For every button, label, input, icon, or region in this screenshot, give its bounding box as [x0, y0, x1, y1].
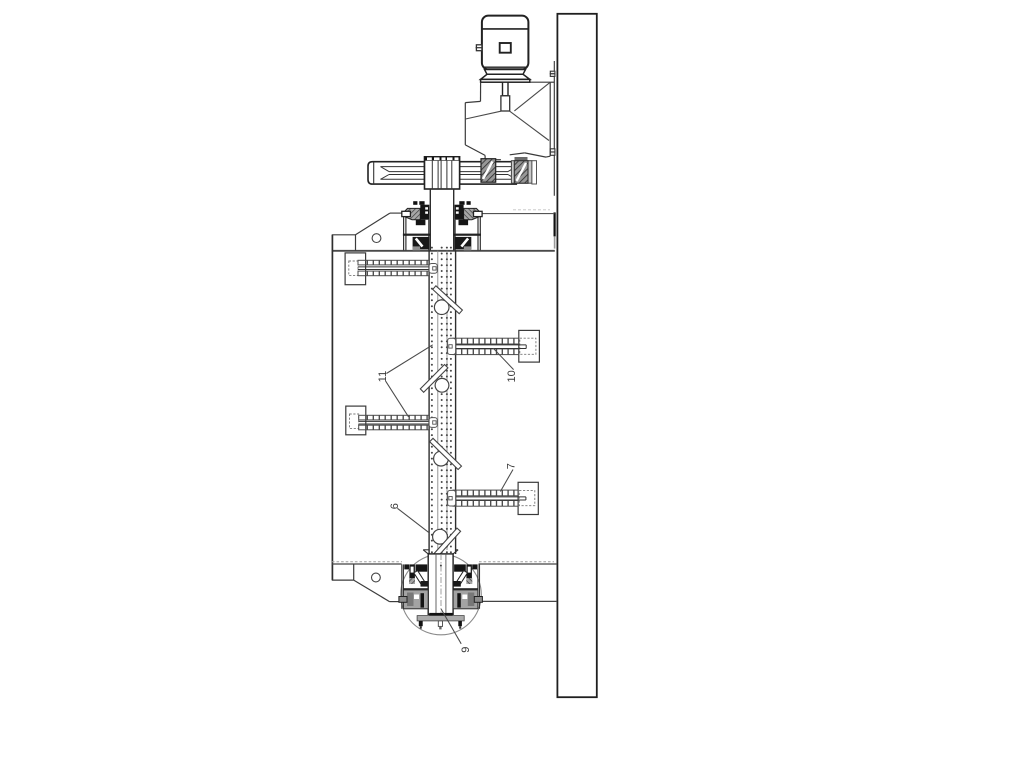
svg-text:9: 9: [460, 647, 472, 653]
svg-text:10: 10: [506, 370, 518, 382]
svg-text:7: 7: [506, 463, 518, 469]
svg-text:11: 11: [377, 371, 389, 382]
svg-text:6: 6: [389, 503, 401, 509]
